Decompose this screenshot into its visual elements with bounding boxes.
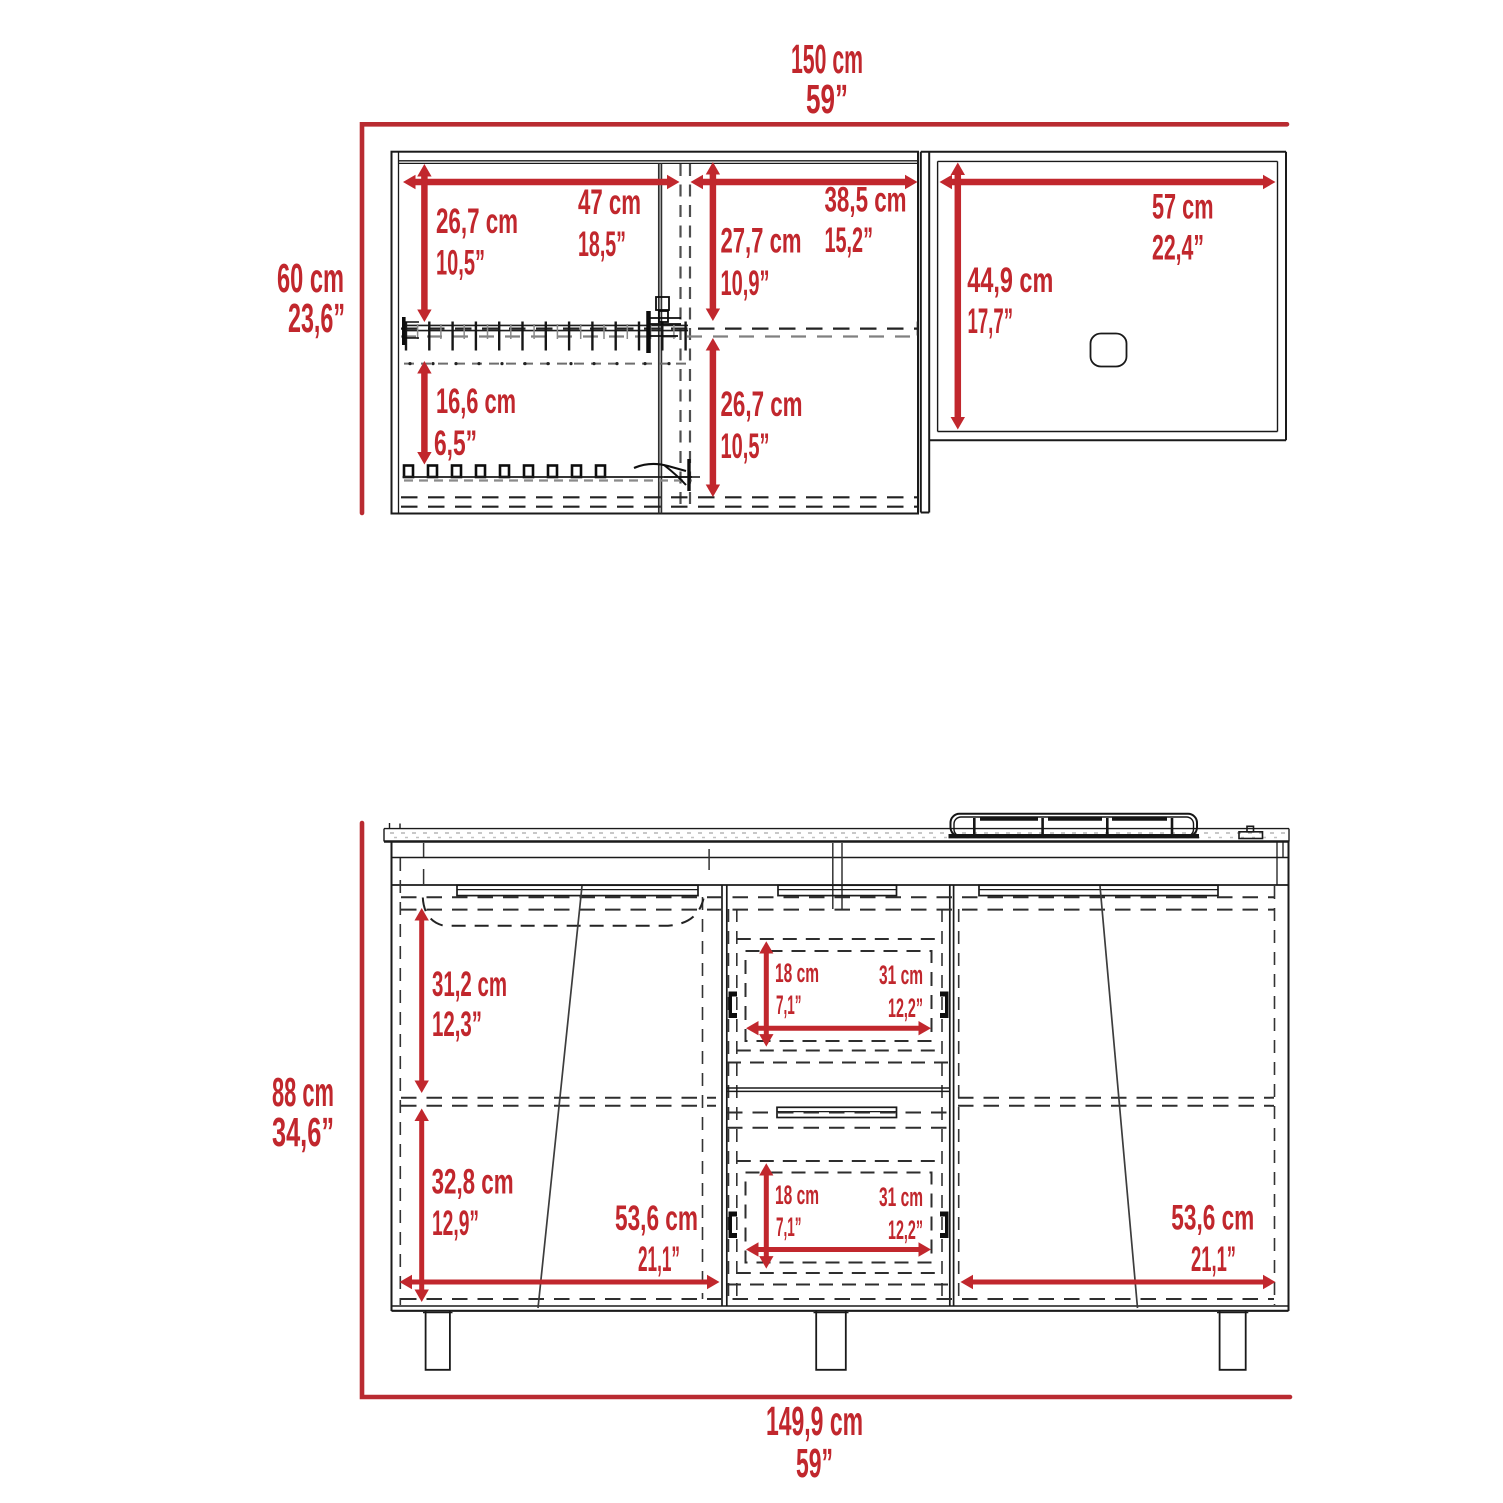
svg-text:149,9 cm: 149,9 cm — [766, 1398, 863, 1444]
svg-text:15,2”: 15,2” — [825, 221, 874, 260]
svg-text:32,8 cm: 32,8 cm — [432, 1163, 514, 1202]
svg-text:53,6 cm: 53,6 cm — [1171, 1199, 1254, 1238]
svg-text:23,6”: 23,6” — [288, 295, 345, 341]
svg-text:47 cm: 47 cm — [578, 183, 641, 222]
svg-text:21,1”: 21,1” — [638, 1240, 680, 1279]
svg-text:27,7 cm: 27,7 cm — [721, 222, 802, 261]
svg-text:12,9”: 12,9” — [432, 1204, 479, 1243]
svg-text:44,9 cm: 44,9 cm — [967, 261, 1053, 300]
svg-text:12,2”: 12,2” — [888, 993, 923, 1023]
svg-text:22,4”: 22,4” — [1152, 229, 1204, 268]
svg-text:12,2”: 12,2” — [888, 1215, 923, 1245]
svg-text:18,5”: 18,5” — [578, 225, 626, 264]
svg-text:7,1”: 7,1” — [776, 1212, 802, 1242]
svg-text:17,7”: 17,7” — [968, 302, 1014, 341]
svg-text:12,3”: 12,3” — [432, 1005, 482, 1044]
svg-text:10,9”: 10,9” — [721, 264, 770, 303]
svg-text:59”: 59” — [806, 76, 848, 122]
svg-text:10,5”: 10,5” — [721, 427, 770, 466]
svg-text:59”: 59” — [796, 1440, 833, 1486]
svg-text:57 cm: 57 cm — [1152, 188, 1214, 227]
svg-text:10,5”: 10,5” — [436, 244, 485, 283]
svg-text:18 cm: 18 cm — [775, 958, 819, 988]
svg-text:38,5 cm: 38,5 cm — [825, 181, 907, 220]
svg-text:16,6 cm: 16,6 cm — [436, 382, 516, 421]
svg-text:34,6”: 34,6” — [272, 1109, 334, 1155]
svg-text:26,7 cm: 26,7 cm — [436, 202, 518, 241]
svg-text:21,1”: 21,1” — [1191, 1240, 1236, 1279]
svg-text:31 cm: 31 cm — [879, 1182, 923, 1212]
svg-text:26,7 cm: 26,7 cm — [721, 385, 803, 424]
svg-text:31,2 cm: 31,2 cm — [432, 965, 507, 1004]
svg-text:6,5”: 6,5” — [434, 424, 477, 463]
svg-text:53,6 cm: 53,6 cm — [615, 1199, 698, 1238]
svg-text:31 cm: 31 cm — [879, 960, 923, 990]
svg-text:18 cm: 18 cm — [775, 1180, 819, 1210]
svg-text:7,1”: 7,1” — [776, 990, 802, 1020]
